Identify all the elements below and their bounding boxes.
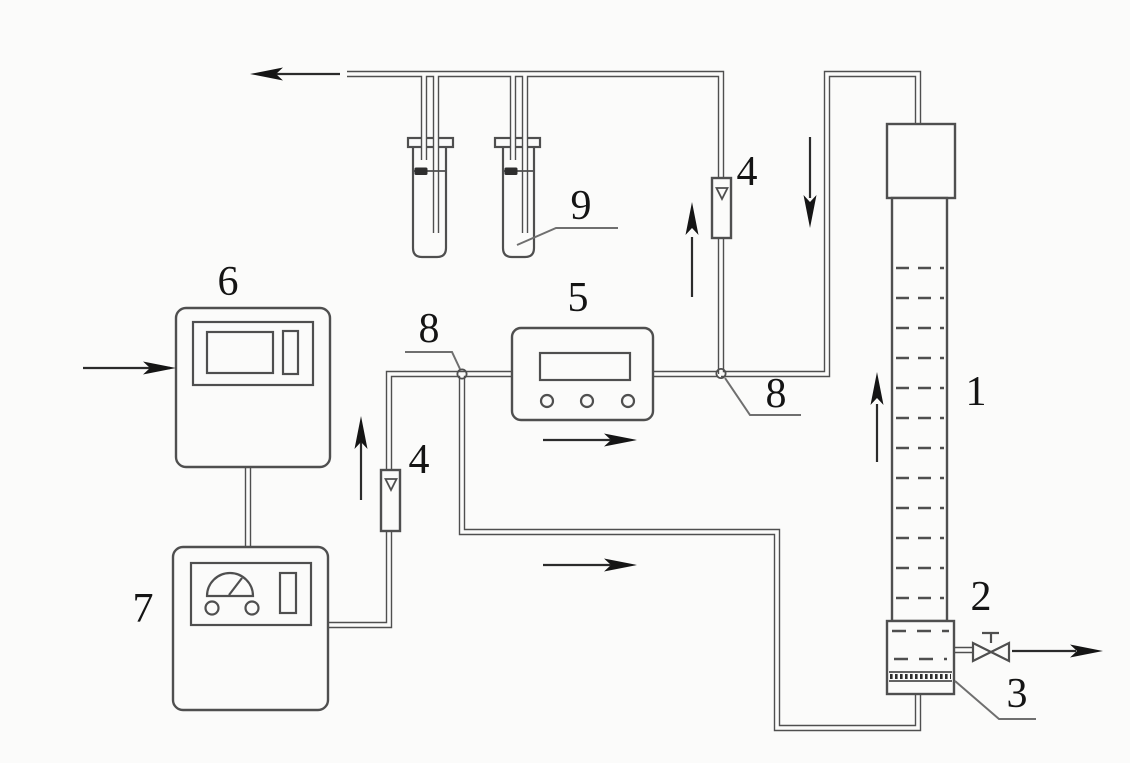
column-bottom-feed-pipe: [462, 374, 918, 728]
leader-8-right: [725, 378, 801, 415]
instrument-7-case: [173, 547, 328, 710]
valve-right-wedge: [991, 643, 1009, 661]
up-arrow-right-rotameter-head: [686, 202, 699, 235]
meter-5: [512, 328, 653, 420]
part-label-7: 7: [133, 588, 154, 630]
part-label-6: 6: [218, 261, 239, 303]
bubbler-caps: [408, 138, 540, 147]
instrument-7: [173, 547, 328, 710]
part-label-9: 9: [571, 185, 592, 227]
drain-valve: [973, 633, 1009, 661]
valve-left-wedge: [973, 643, 991, 661]
instrument-6: [176, 308, 330, 467]
bubbler-2-liquid-shade: [505, 168, 518, 176]
part-label-1: 1: [966, 371, 987, 413]
bubbler-2-stopper: [495, 138, 540, 147]
bubbler-1-stopper: [408, 138, 453, 147]
column-top-gas-pipe: [721, 74, 918, 374]
part-label-8-right: 8: [766, 373, 787, 415]
part-label-2: 2: [971, 576, 992, 618]
column-top-head: [887, 124, 955, 198]
column-body: [892, 198, 947, 621]
up-arrow-column-head: [871, 372, 884, 405]
part-label-4-right: 4: [737, 151, 758, 193]
rotameter-right-body: [712, 178, 731, 238]
apparatus-schematic-canvas: 1 2 3 4 4 5 6 7 8 8 9: [0, 0, 1130, 763]
bubbler-1-body: [413, 147, 446, 257]
leader-8-left: [405, 352, 460, 369]
part-label-5: 5: [568, 277, 589, 319]
part-label-8-left: 8: [419, 308, 440, 350]
part-label-3: 3: [1007, 673, 1028, 715]
leader-9: [517, 228, 618, 245]
part-label-4-left: 4: [409, 439, 430, 481]
gas-washing-bottles: [413, 147, 534, 257]
bubbler-1-liquid-shade: [415, 168, 428, 176]
down-arrow-head: [804, 195, 817, 228]
schematic-drawing: [0, 0, 1130, 763]
